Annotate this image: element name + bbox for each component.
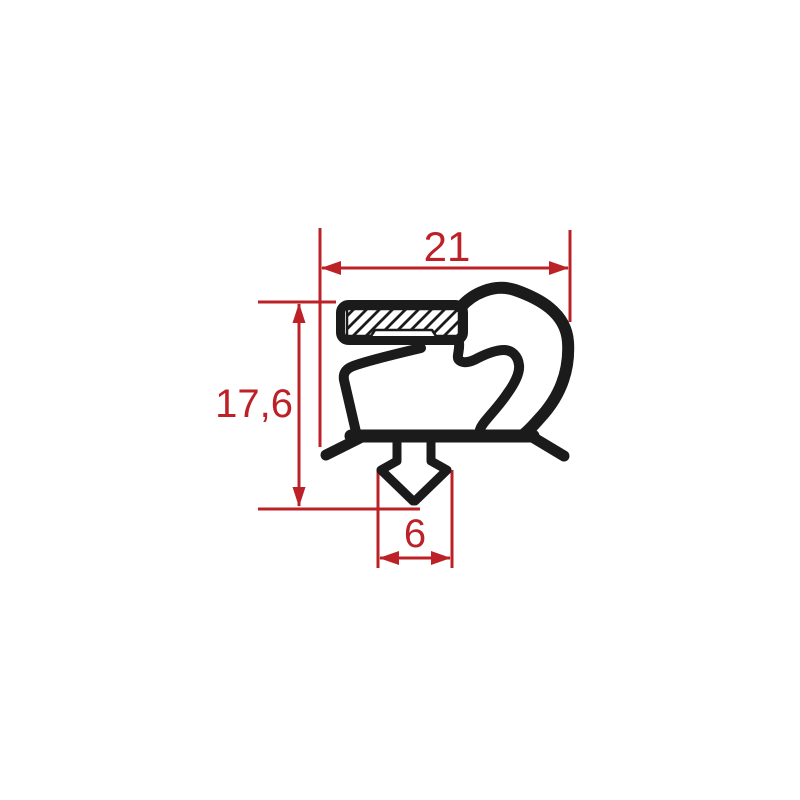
right-lip — [534, 438, 564, 456]
arrowhead-height-top — [293, 303, 306, 323]
chamber-wall — [344, 348, 421, 432]
label-overall-height: 17,6 — [215, 382, 293, 426]
arrowhead-width-left — [321, 261, 341, 275]
arrowhead-width-right — [549, 261, 569, 275]
arrowhead-dart-left — [379, 551, 399, 565]
dart-right-barb — [415, 440, 447, 501]
profile-outline — [326, 288, 568, 501]
drawing-canvas: 21 17,6 6 — [0, 0, 800, 800]
label-overall-width: 21 — [424, 223, 471, 270]
arrowhead-dart-right — [431, 551, 451, 565]
gasket-profile-drawing: 21 17,6 6 — [0, 0, 800, 800]
bulb-inner-wall — [458, 343, 519, 436]
dart-left-barb — [381, 440, 413, 501]
arrowhead-height-bottom — [293, 487, 306, 507]
left-lip — [326, 438, 360, 455]
label-dart-width: 6 — [404, 512, 426, 556]
